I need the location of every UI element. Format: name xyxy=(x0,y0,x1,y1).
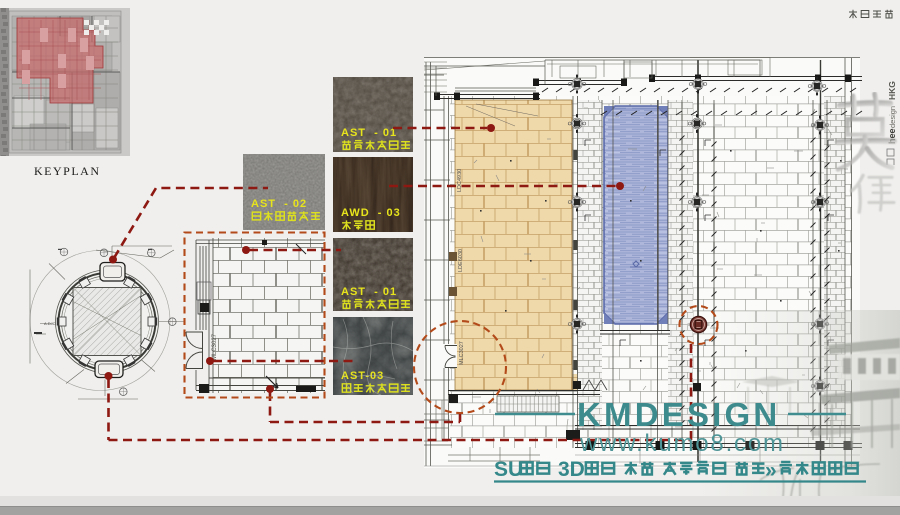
svg-text:»: » xyxy=(765,459,777,482)
svg-text:3D: 3D xyxy=(558,458,585,481)
svg-text:SU: SU xyxy=(494,458,523,481)
